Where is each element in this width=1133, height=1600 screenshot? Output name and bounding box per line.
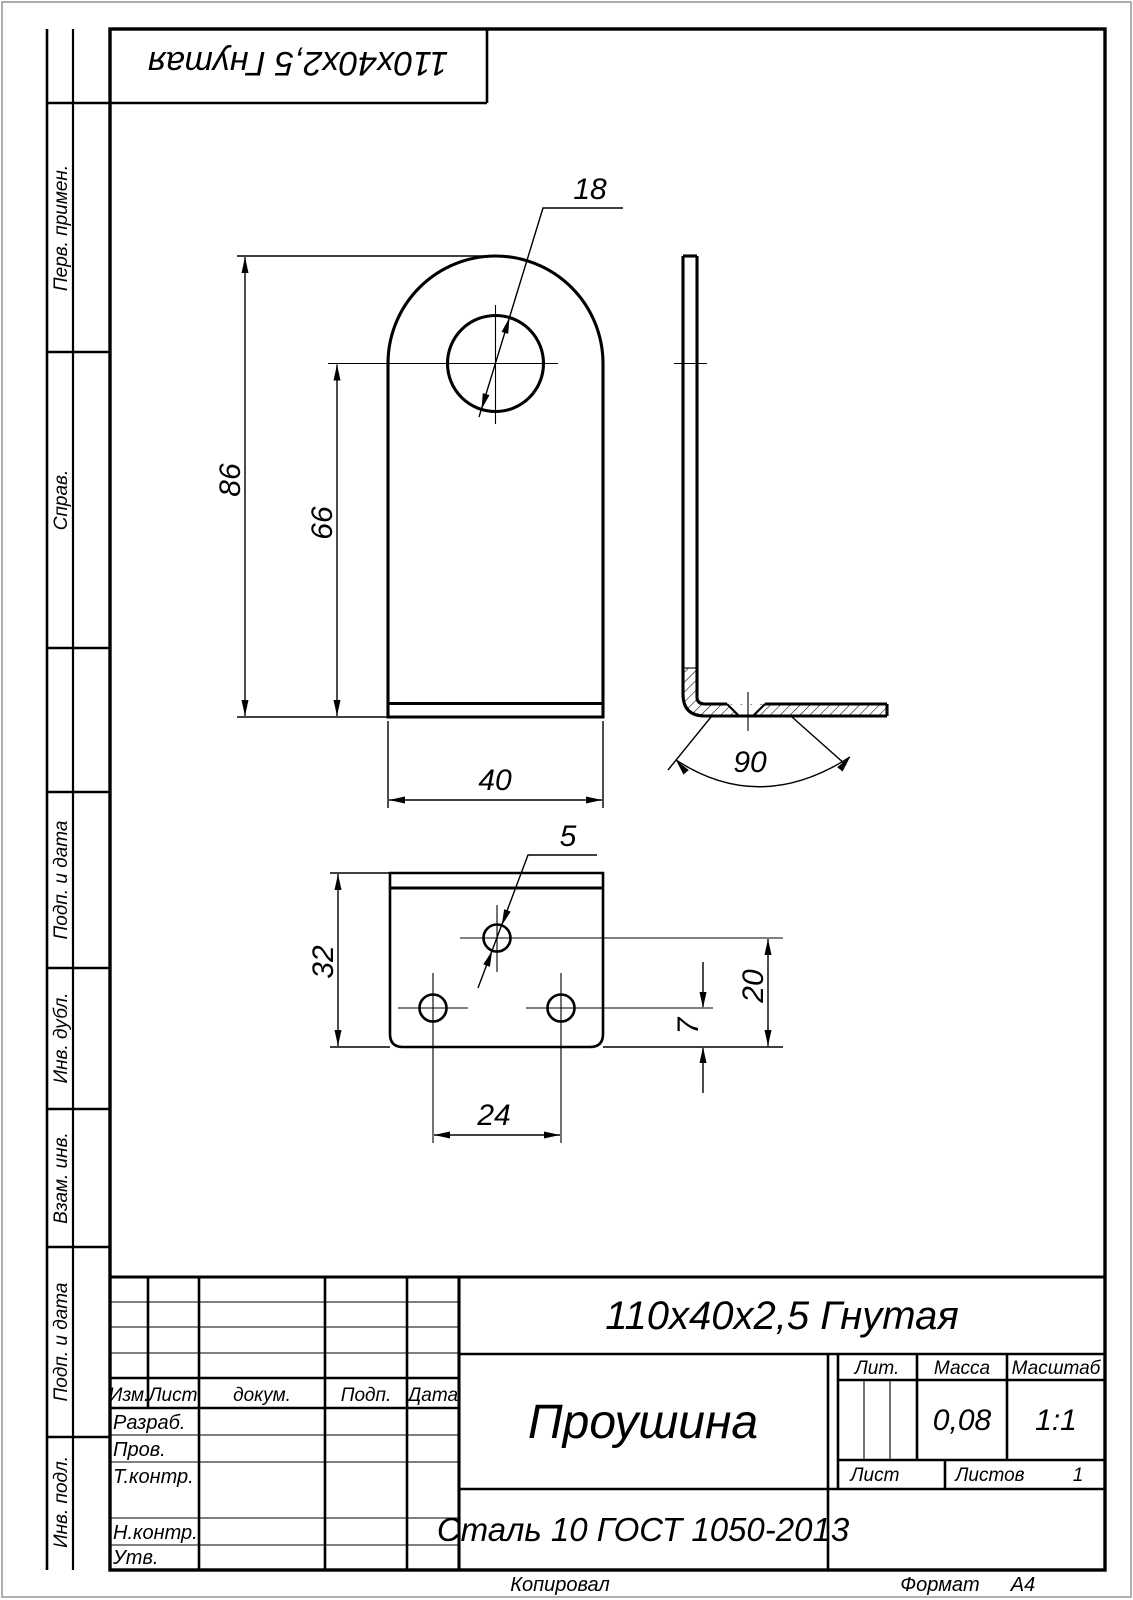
th-dokum: докум. xyxy=(233,1385,291,1406)
part-name: Проушина xyxy=(528,1396,758,1449)
section-hatch xyxy=(683,668,887,716)
margin-strip: Перв. примен. Справ. Подп. и дата Инв. д… xyxy=(47,29,110,1570)
row-utv: Утв. xyxy=(112,1547,158,1569)
designation: 110x40x2,5 Гнутая xyxy=(605,1294,958,1338)
dim-height-total: 86 xyxy=(214,463,247,497)
footer-kopiroval: Копировал xyxy=(510,1574,609,1596)
row-nkontr: Н.контр. xyxy=(113,1522,198,1544)
th-data: Дата xyxy=(406,1385,458,1406)
margin-label-inv-dubl: Инв. дубл. xyxy=(51,993,72,1084)
side-view xyxy=(674,256,887,731)
th-lit: Лит. xyxy=(853,1358,900,1379)
dim-flange-hole-diameter: 5 xyxy=(560,820,577,853)
th-izm: Изм. xyxy=(109,1385,150,1406)
th-masshtab: Масштаб xyxy=(1012,1358,1102,1379)
dim-flange-hole-offset: 20 xyxy=(737,969,770,1004)
margin-label-sprav: Справ. xyxy=(51,470,72,531)
margin-label-inv-podl: Инв. подл. xyxy=(51,1456,72,1548)
drawing-sheet: 110x40x2,5 Гнутая Перв. примен. Справ. П… xyxy=(0,0,1133,1600)
corner-stamp-text: 110x40x2,5 Гнутая xyxy=(148,44,448,82)
mass-value: 0,08 xyxy=(933,1404,992,1437)
dimensions: 86 66 40 18 90 5 32 xyxy=(214,173,850,1139)
dim-height-hole: 66 xyxy=(306,506,339,540)
th-podp: Подп. xyxy=(341,1385,392,1406)
front-view xyxy=(328,256,603,717)
footer-format-a4: А4 xyxy=(1010,1574,1035,1596)
scale-value: 1:1 xyxy=(1035,1404,1077,1437)
dim-bend-angle: 90 xyxy=(733,746,767,779)
margin-label-podp-data-1: Подп. и дата xyxy=(51,821,72,940)
margin-label-vzam-inv: Взам. инв. xyxy=(51,1132,72,1224)
material: Сталь 10 ГОСТ 1050-2013 xyxy=(437,1511,850,1548)
sheets-count: 1 xyxy=(1073,1465,1084,1486)
th-massa: Масса xyxy=(934,1358,990,1379)
sheet-footer: Копировал Формат А4 xyxy=(510,1574,1035,1596)
footer-format: Формат xyxy=(900,1574,979,1596)
corner-stamp: 110x40x2,5 Гнутая xyxy=(110,29,487,103)
drawing-canvas: 110x40x2,5 Гнутая Перв. примен. Справ. П… xyxy=(0,0,1133,1600)
row-razrab: Разраб. xyxy=(113,1412,185,1434)
th-listov: Листов xyxy=(953,1465,1024,1486)
title-block: Изм. Лист докум. Подп. Дата Разраб. Пров… xyxy=(109,1277,1105,1570)
margin-label-podp-data-2: Подп. и дата xyxy=(51,1283,72,1402)
dim-flange-hole-spacing: 24 xyxy=(476,1099,510,1132)
dim-hole-diameter: 18 xyxy=(573,173,607,206)
th-list2: Лист xyxy=(849,1465,900,1486)
th-list: Лист xyxy=(147,1385,198,1406)
dim-flange-edge-offset: 7 xyxy=(672,1016,705,1034)
row-tkontr: Т.контр. xyxy=(113,1466,194,1488)
dim-width: 40 xyxy=(478,764,512,797)
row-prov: Пров. xyxy=(113,1439,166,1461)
margin-label-perv-primen: Перв. примен. xyxy=(51,165,72,291)
dim-flange-width: 32 xyxy=(307,945,340,979)
bottom-view xyxy=(390,873,783,1143)
